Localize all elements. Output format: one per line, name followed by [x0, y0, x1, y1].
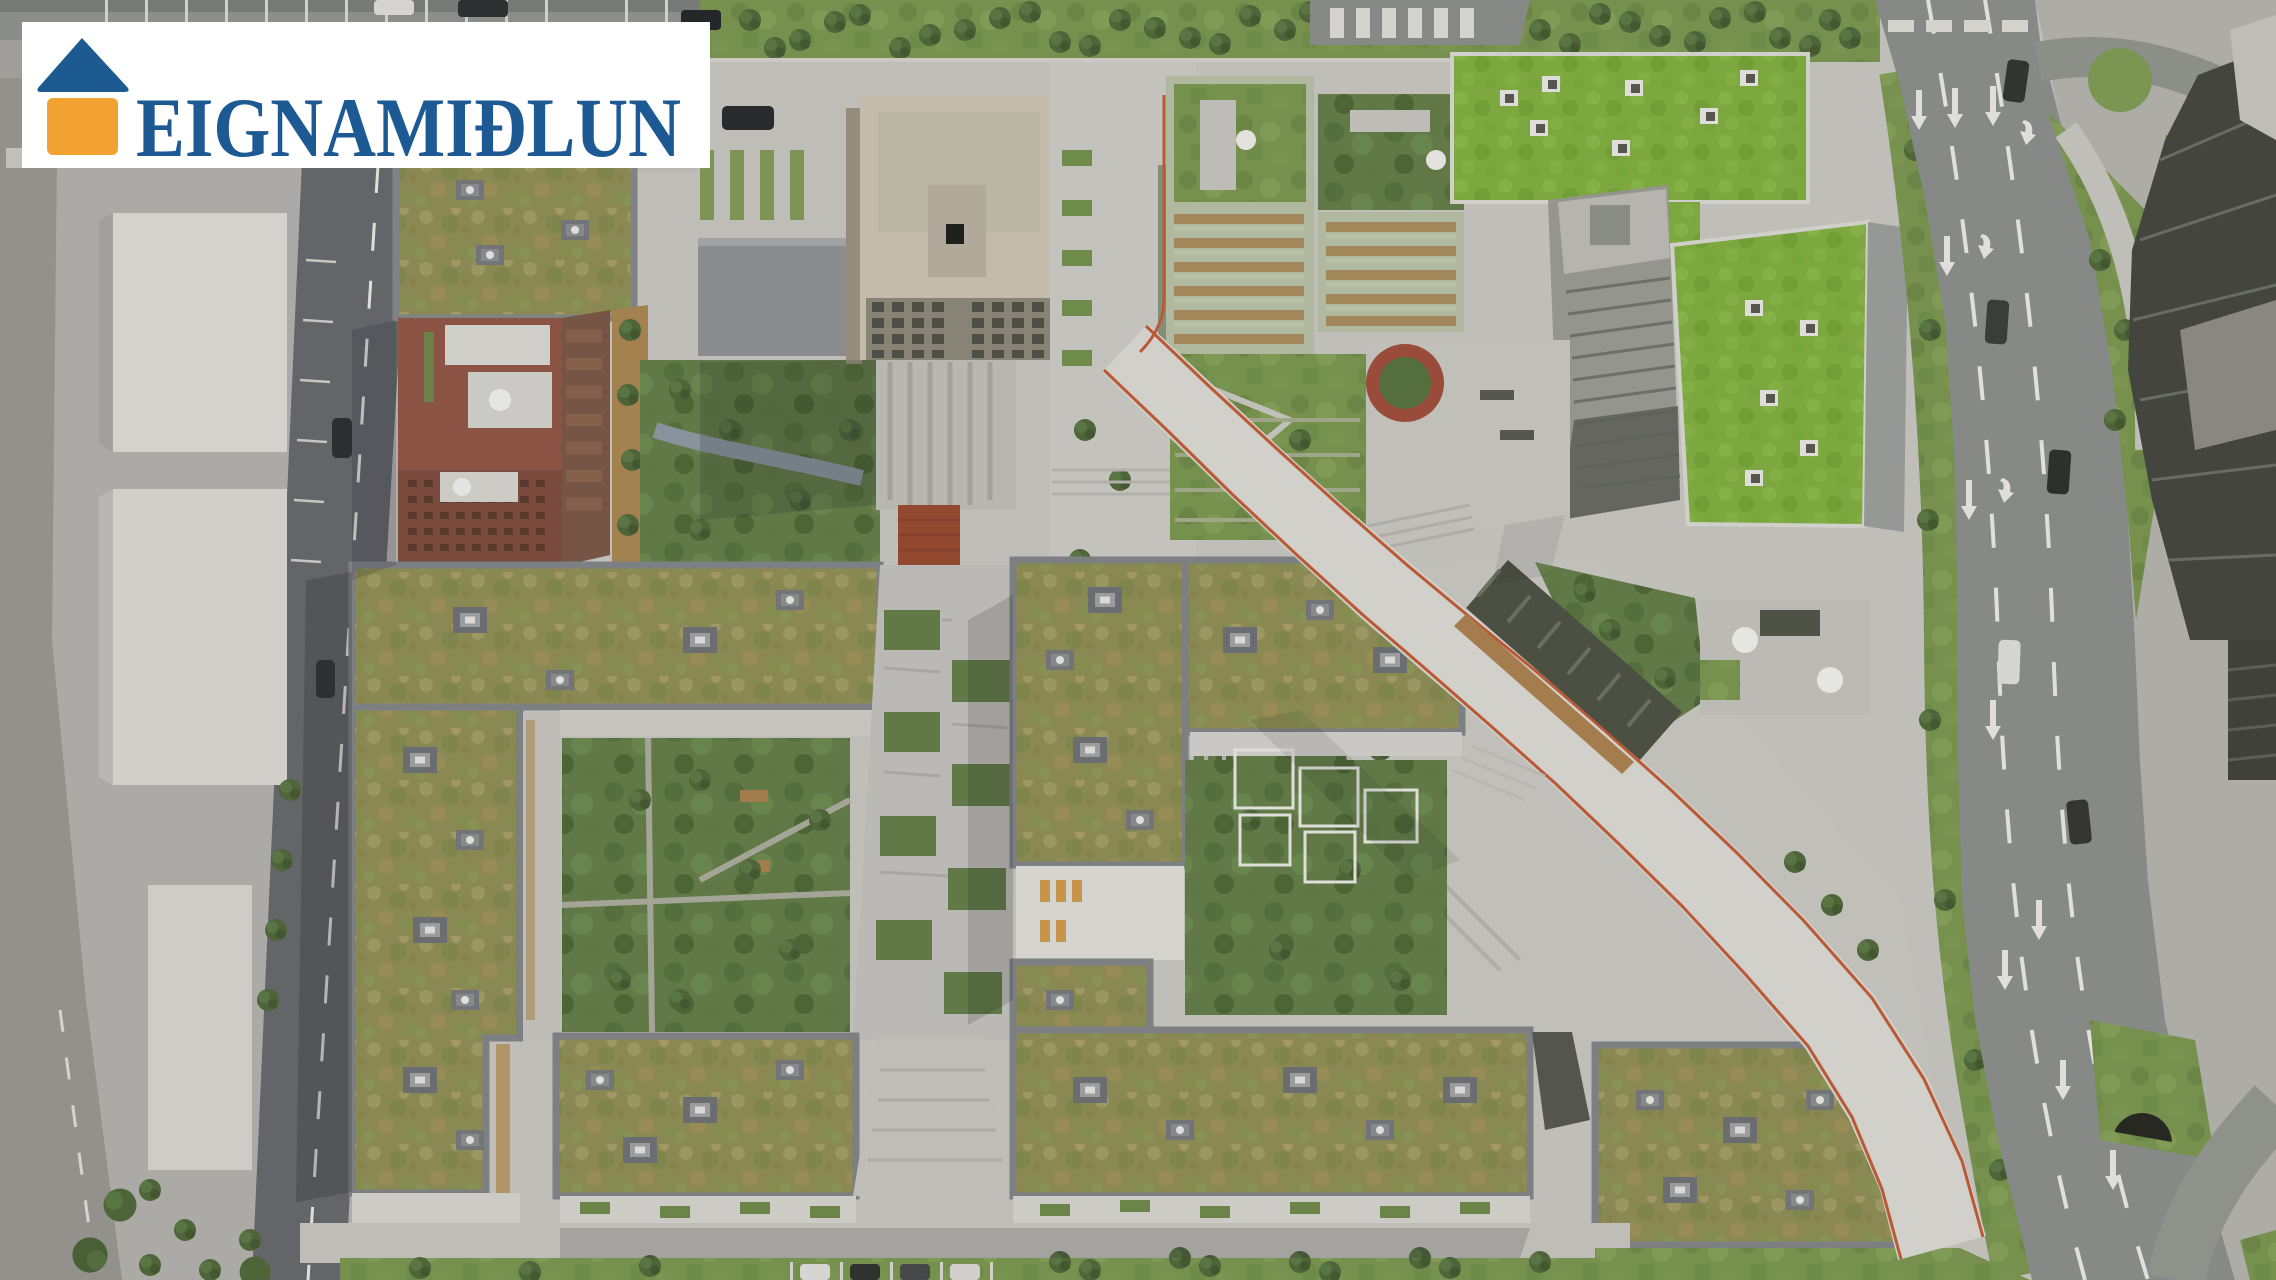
svg-text:EIGNAMIÐLUN: EIGNAMIÐLUN	[136, 81, 681, 175]
